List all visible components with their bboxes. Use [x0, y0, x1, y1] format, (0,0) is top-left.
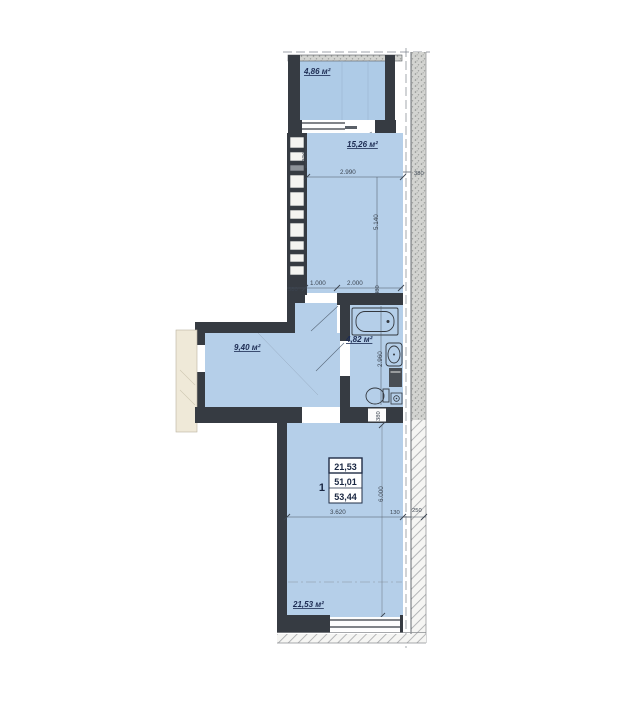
living-area-value: 21,53 [334, 462, 357, 472]
bedroom-room: 21,53 м² [277, 423, 403, 633]
dim-bedroom-width: 3.620 [330, 509, 346, 516]
total-area-value: 53,44 [334, 492, 357, 502]
dim-bottom-opening: 1.000 [310, 280, 326, 287]
dim-right-wall: 380 [414, 171, 424, 177]
hallway-room: 9,40 м² [195, 303, 340, 407]
bedroom-window-wall [277, 615, 426, 643]
dim-kitchen-width: 2.990 [340, 169, 356, 176]
dim-bathroom-wall: 380 [376, 411, 382, 421]
dim-kitchen-length: 5.140 [373, 214, 380, 230]
dim-bottom-span: 2.000 [347, 280, 363, 287]
bedroom-area-label: 21,53 м² [292, 600, 324, 609]
balcony-area-label: 4,86 м² [303, 67, 331, 76]
floorplan-page: 4,86 м² 15,26 м² [0, 0, 638, 701]
dim-offset: 130 [390, 510, 400, 516]
stairwell-area [176, 330, 197, 432]
apartment-number: 1 [319, 482, 325, 494]
dim-bottom-right-wall: 380 [375, 285, 381, 295]
heater-icon [389, 368, 402, 387]
hallway-area-label: 9,40 м² [234, 343, 261, 352]
kitchen-area-label: 15,26 м² [347, 140, 378, 149]
apartment-area-value: 51,01 [334, 477, 357, 487]
kitchen-room: 15,26 м² [307, 133, 403, 293]
dim-bedroom-length: 6.000 [378, 486, 385, 502]
dim-balcony-opening: 770 [302, 151, 309, 162]
outer-wall-right [411, 52, 426, 643]
floorplan-drawing: 4,86 м² 15,26 м² [0, 0, 638, 701]
dim-bottom-left-wall: 380 [288, 287, 298, 293]
bathroom-area-label: 4,82 м² [345, 335, 373, 344]
dim-bathroom-length: 2.960 [377, 351, 384, 367]
dim-outer-wall: 250 [412, 508, 422, 514]
